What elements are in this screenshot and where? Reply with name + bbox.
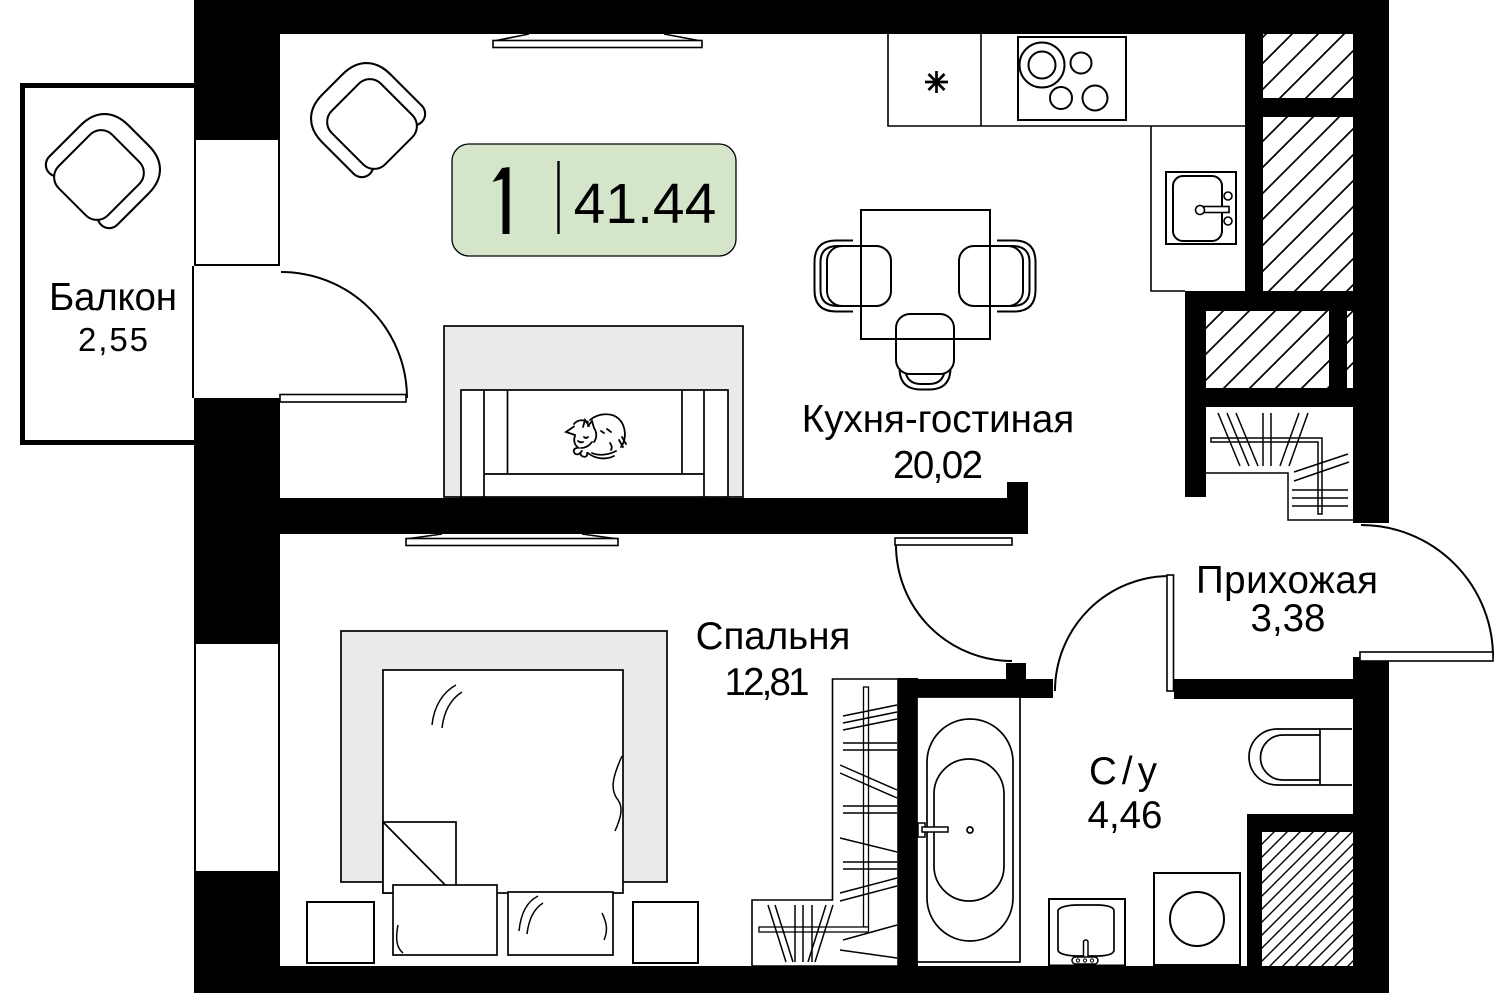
svg-text:41.44: 41.44 [574,172,717,236]
svg-text:2,55: 2,55 [78,321,148,358]
svg-text:20,02: 20,02 [893,444,983,487]
svg-text:Балкон: Балкон [49,276,177,319]
svg-text:Кухня-гостиная: Кухня-гостиная [802,398,1074,441]
svg-text:Спальня: Спальня [696,615,851,658]
svg-text:3,38: 3,38 [1251,597,1326,640]
svg-text:Прихожая: Прихожая [1196,559,1378,602]
svg-text:4,46: 4,46 [1088,794,1163,837]
svg-text:С/у: С/у [1089,750,1158,793]
svg-text:12,81: 12,81 [725,661,810,704]
